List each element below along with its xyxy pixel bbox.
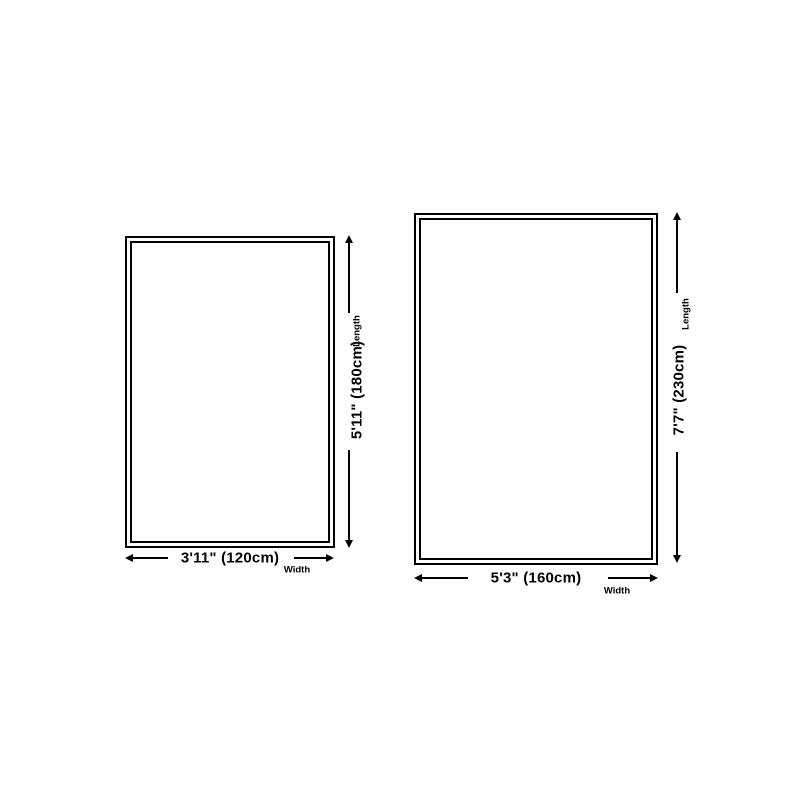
width-arrow-right-icon — [650, 574, 658, 582]
length-arrow-down-icon — [673, 555, 681, 563]
width-value-label: 5'3" (160cm) — [491, 571, 582, 586]
length-dimension-line-top — [676, 219, 678, 293]
width-arrow-left-icon — [414, 574, 422, 582]
length-arrow-down-icon — [345, 540, 353, 548]
length-dimension-line-bottom — [676, 452, 678, 555]
width-dimension-line-right — [608, 577, 650, 579]
length-value-label: 7'7" (230cm) — [672, 345, 687, 436]
width-dimension-line-left — [133, 557, 168, 559]
size-diagram-canvas: Length 5'11" (180cm) 3'11" (120cm) Width… — [0, 0, 800, 800]
rug-outline-large — [414, 213, 658, 565]
rug-inner-border-large — [419, 218, 653, 560]
length-dimension-line-top — [348, 242, 350, 313]
rug-outline-small — [125, 236, 335, 548]
width-dimension-line-left — [422, 577, 468, 579]
length-dimension-line-bottom — [348, 450, 350, 540]
width-arrow-left-icon — [125, 554, 133, 562]
length-axis-label: Length — [681, 298, 691, 330]
rug-inner-border-small — [130, 241, 330, 543]
width-axis-label: Width — [604, 586, 630, 596]
width-value-label: 3'11" (120cm) — [181, 551, 279, 566]
width-axis-label: Width — [284, 565, 310, 575]
width-arrow-right-icon — [326, 554, 334, 562]
width-dimension-line-right — [294, 557, 326, 559]
length-value-label: 5'11" (180cm) — [350, 341, 365, 439]
